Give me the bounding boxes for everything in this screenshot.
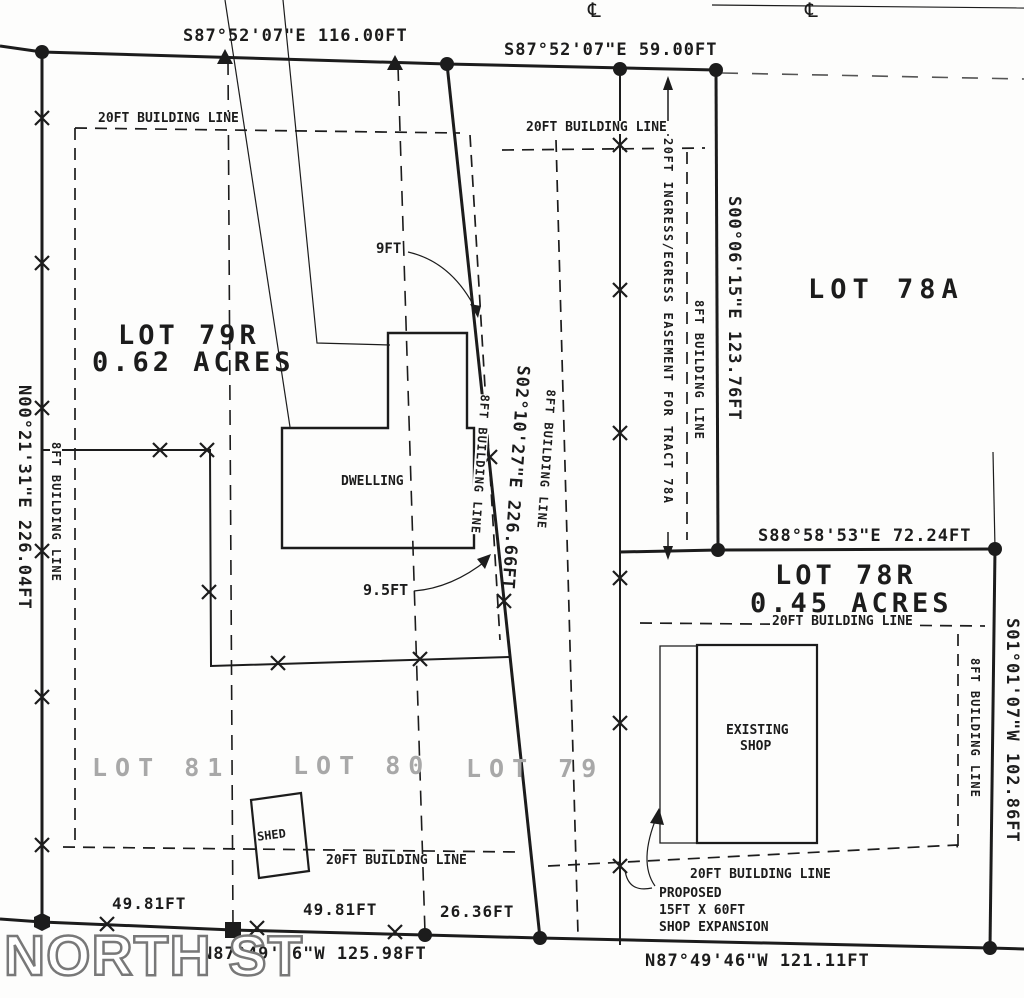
lot79r-area: 0.62 ACRES (92, 349, 295, 376)
lot79-name: LOT 79 (466, 756, 604, 781)
lot80-name: LOT 80 (293, 753, 431, 778)
building-line-8ft-label-corridor: 8FT BUILDING LINE (693, 300, 705, 440)
building-line-8ft-label-west: 8FT BUILDING LINE (50, 442, 62, 582)
offset-9-5ft-label: 9.5FT (363, 583, 408, 598)
centerline-icon: ℄ (805, 0, 818, 20)
building-line-20ft-label-corridor: 20FT BUILDING LINE (524, 121, 669, 134)
bearing-west-line: N00°21'31"E 226.04FT (15, 385, 32, 610)
lot78a-name: LOT 78A (808, 276, 964, 303)
street-centerline (712, 5, 1024, 8)
building-line-20ft-label-lot79r-front: 20FT BUILDING LINE (96, 112, 241, 125)
bearing-top-east: S87°52'07"E 59.00FT (504, 42, 717, 59)
bearing-lot78r-east: S01°01'07"W 102.86FT (1003, 618, 1020, 843)
lot78r-area: 0.45 ACRES (750, 590, 953, 617)
bearing-corridor-east: S00°06'15"E 123.76FT (725, 196, 742, 421)
offset-9ft-label: 9FT (376, 242, 401, 256)
street-name-north-st: NORTH ST (4, 928, 303, 985)
building-line-8ft-label-lot78r-east: 8FT BUILDING LINE (969, 658, 981, 798)
distance-49-81-west: 49.81FT (112, 896, 186, 912)
building-line-20ft-label-lot78r-rear: 20FT BUILDING LINE (688, 868, 833, 881)
easement-label: 20FT INGRESS/EGRESS EASEMENT FOR TRACT 7… (662, 138, 674, 504)
proposed-note-line1: PROPOSED (659, 886, 722, 902)
distance-49-81-east: 49.81FT (303, 902, 377, 918)
bearing-north-st-east: N87°49'46"W 121.11FT (645, 953, 870, 970)
existing-shop-label-line1: EXISTING (726, 724, 789, 737)
lot81-name: LOT 81 (92, 755, 230, 780)
proposed-note-line2: 15FT X 60FT (659, 903, 745, 919)
survey-plat: S87°52'07"E 116.00FT S87°52'07"E 59.00FT… (0, 0, 1024, 998)
proposed-expansion-outline (660, 646, 697, 843)
dwelling-label: DWELLING (341, 475, 404, 488)
existing-shop-label-line2: SHOP (740, 740, 771, 753)
centerline-icon: ℄ (588, 0, 601, 20)
building-line-20ft-label-lot79r-rear: 20FT BUILDING LINE (324, 854, 469, 867)
lot-lines-dashed (228, 60, 1024, 933)
bearing-lot78r-north: S88°58'53"E 72.24FT (758, 528, 971, 545)
building-line-20ft-label-lot78r-front: 20FT BUILDING LINE (770, 615, 915, 628)
fence-lines (42, 70, 620, 945)
dwelling-outline (282, 333, 474, 548)
distance-26-36: 26.36FT (440, 904, 514, 920)
bearing-top-west: S87°52'07"E 116.00FT (183, 28, 408, 45)
lot78r-name: LOT 78R (775, 562, 917, 589)
shed-label: SHED (256, 827, 286, 842)
proposed-note-line3: SHOP EXPANSION (659, 920, 769, 936)
lot79r-name: LOT 79R (118, 322, 260, 349)
